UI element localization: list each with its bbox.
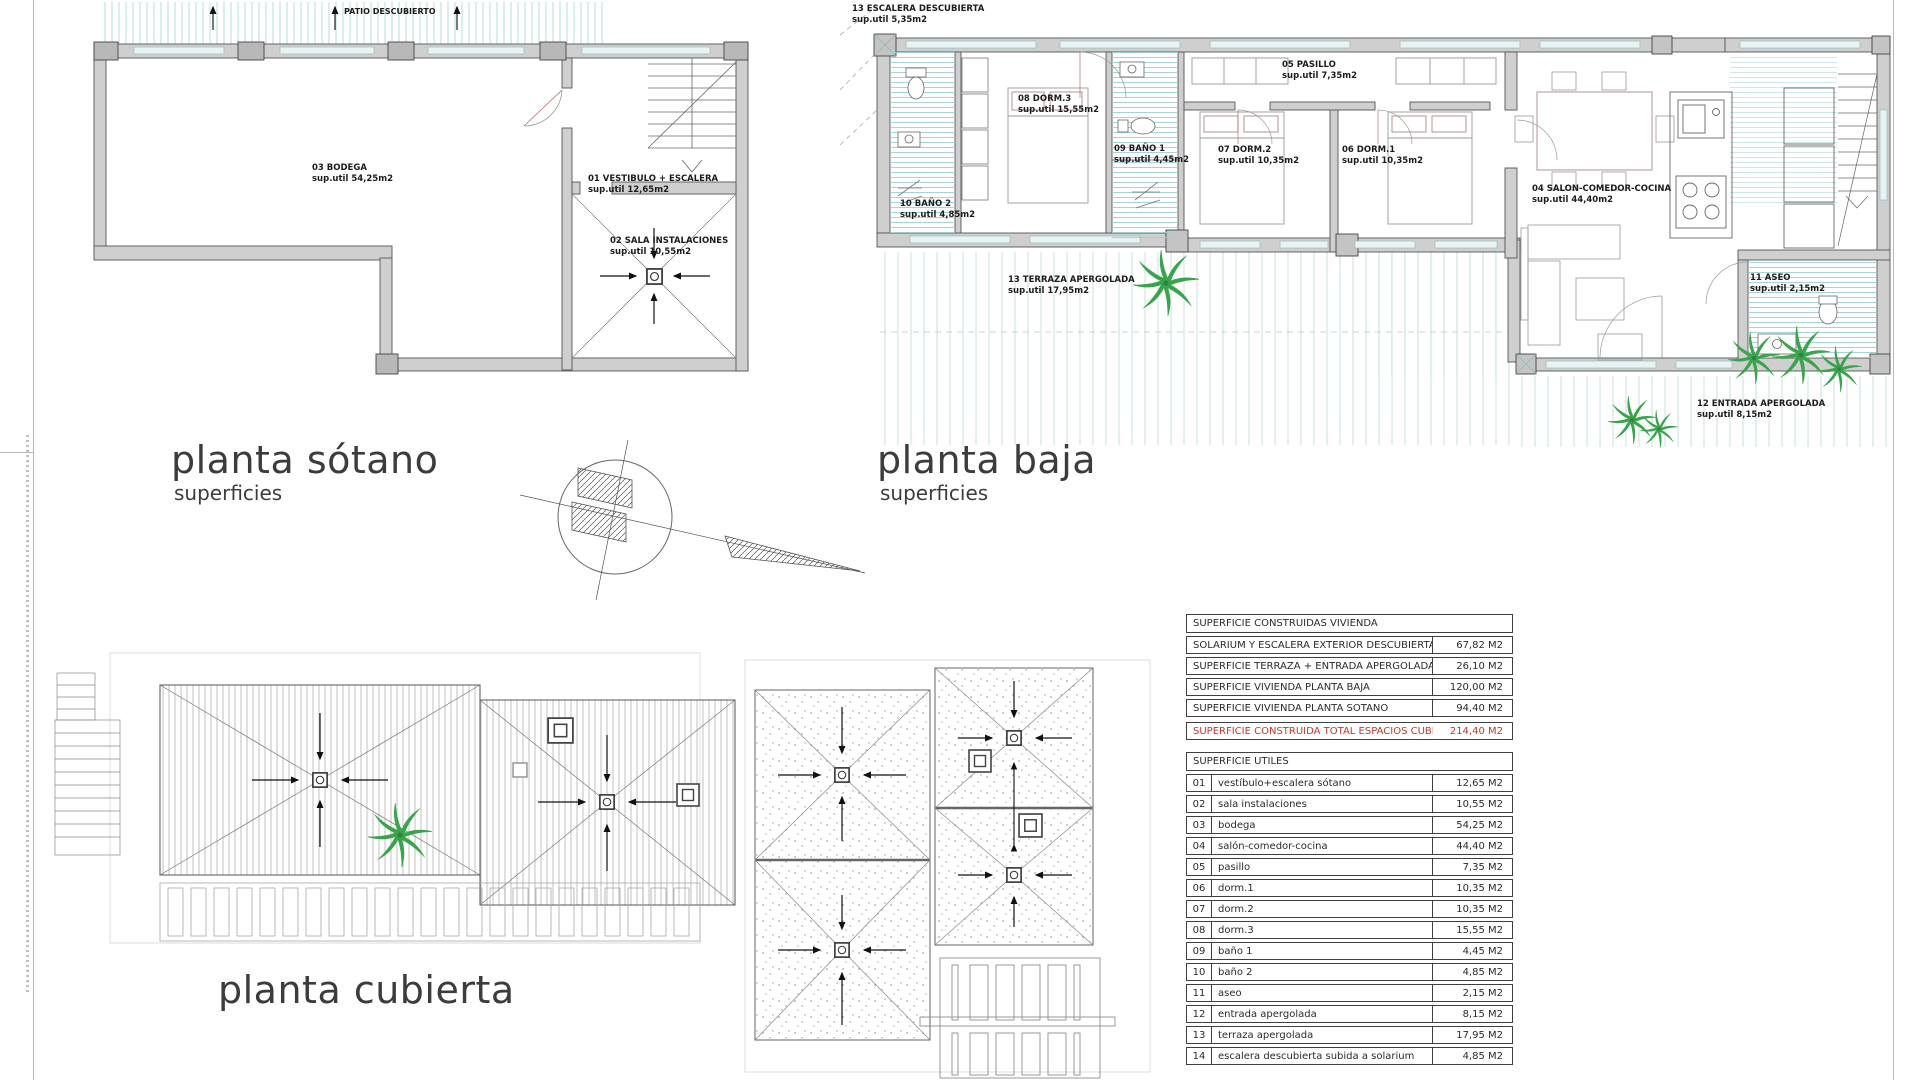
sotano-door <box>524 90 562 126</box>
title-planta-cubierta: planta cubierta <box>218 968 515 1012</box>
row-number: 02 <box>1187 796 1212 812</box>
room-label-pasillo: 05 PASILLOsup.util 7,35m2 <box>1282 60 1357 82</box>
row-number: 04 <box>1187 838 1212 854</box>
row-value: 7,35 M2 <box>1432 859 1512 875</box>
room-label-sala-instalaciones: 02 SALA INSTALACIONESsup.util 10,55m2 <box>610 236 728 258</box>
table-row: 14 escalera descubierta subida a solariu… <box>1186 1047 1513 1065</box>
room-label-dorm2: 07 DORM.2sup.util 10,35m2 <box>1218 145 1299 167</box>
row-label: SOLARIUM Y ESCALERA EXTERIOR DESCUBIERTA <box>1187 637 1432 653</box>
sala-instalaciones-cross <box>572 194 736 358</box>
dorm1-furniture <box>1388 58 1496 224</box>
table-total-row: SUPERFICIE CONSTRUIDA TOTAL ESPACIOS CUB… <box>1186 722 1513 740</box>
row-label: SUPERFICIE TERRAZA + ENTRADA APERGOLADA <box>1187 658 1432 674</box>
row-number: 05 <box>1187 859 1212 875</box>
row-number: 10 <box>1187 964 1212 980</box>
table-superficies-utiles: SUPERFICIE UTILES 01 vestíbulo+escalera … <box>1186 752 1513 1065</box>
subtitle-baja: superficies <box>880 481 988 505</box>
plan-baja-drawing <box>840 0 1920 455</box>
table-row: 13 terraza apergolada 17,95 M2 <box>1186 1026 1513 1044</box>
table-row: 02 sala instalaciones 10,55 M2 <box>1186 795 1513 813</box>
row-label: dorm.2 <box>1212 901 1432 917</box>
total-value: 214,40 M2 <box>1433 723 1512 739</box>
row-label: escalera descubierta subida a solarium <box>1212 1048 1432 1064</box>
row-value: 4,85 M2 <box>1432 1048 1512 1064</box>
room-label-bodega: 03 BODEGAsup.util 54,25m2 <box>312 163 393 185</box>
row-label: sala instalaciones <box>1212 796 1432 812</box>
row-number: 09 <box>1187 943 1212 959</box>
row-value: 4,45 M2 <box>1432 943 1512 959</box>
table-row: 06 dorm.1 10,35 M2 <box>1186 879 1513 897</box>
escalera-descubierta-lines <box>840 6 877 145</box>
row-number: 03 <box>1187 817 1212 833</box>
row-value: 26,10 M2 <box>1432 658 1512 674</box>
title-planta-baja: planta baja <box>877 438 1096 482</box>
room-label-dorm3: 08 DORM.3sup.util 15,55m2 <box>1018 94 1099 116</box>
row-value: 10,35 M2 <box>1432 901 1512 917</box>
table-utiles-rows: 01 vestíbulo+escalera sótano 12,65 M2 02… <box>1186 774 1513 1065</box>
table-row: SOLARIUM Y ESCALERA EXTERIOR DESCUBIERTA… <box>1186 636 1513 654</box>
room-label-dorm1: 06 DORM.1sup.util 10,35m2 <box>1342 145 1423 167</box>
row-value: 2,15 M2 <box>1432 985 1512 1001</box>
row-label: salón-comedor-cocina <box>1212 838 1432 854</box>
sheet-frame-left <box>33 0 34 1080</box>
table-row: 08 dorm.3 15,55 M2 <box>1186 921 1513 939</box>
row-value: 54,25 M2 <box>1432 817 1512 833</box>
roof-c <box>755 690 930 1040</box>
row-label: bodega <box>1212 817 1432 833</box>
table-row: 03 bodega 54,25 M2 <box>1186 816 1513 834</box>
row-label: vestíbulo+escalera sótano <box>1212 775 1432 791</box>
total-label: SUPERFICIE CONSTRUIDA TOTAL ESPACIOS CUB… <box>1187 723 1433 739</box>
sotano-stairs <box>648 58 736 172</box>
row-number: 06 <box>1187 880 1212 896</box>
table-row: 09 baño 1 4,45 M2 <box>1186 942 1513 960</box>
room-label-bano2: 10 BAÑO 2sup.util 4,85m2 <box>900 199 975 221</box>
plan-sotano-drawing <box>88 0 758 400</box>
row-number: 13 <box>1187 1027 1212 1043</box>
room-label-salon: 04 SALON-COMEDOR-COCINAsup.util 44,40m2 <box>1532 184 1671 206</box>
room-label-bano1: 09 BAÑO 1sup.util 4,45m2 <box>1114 144 1189 166</box>
table-row: SUPERFICIE TERRAZA + ENTRADA APERGOLADA … <box>1186 657 1513 675</box>
table-row: SUPERFICIE VIVIENDA PLANTA SOTANO 94,40 … <box>1186 699 1513 717</box>
row-label: aseo <box>1212 985 1432 1001</box>
row-number: 08 <box>1187 922 1212 938</box>
row-label: baño 1 <box>1212 943 1432 959</box>
roof-a <box>160 685 480 875</box>
row-value: 67,82 M2 <box>1432 637 1512 653</box>
row-label: SUPERFICIE VIVIENDA PLANTA SOTANO <box>1187 700 1432 716</box>
row-value: 4,85 M2 <box>1432 964 1512 980</box>
row-number: 07 <box>1187 901 1212 917</box>
sheet-stamp-microtext <box>26 432 29 992</box>
row-label: terraza apergolada <box>1212 1027 1432 1043</box>
table-superficies-construidas: SUPERFICIE CONSTRUIDAS VIVIENDA SOLARIUM… <box>1186 614 1513 740</box>
room-label-aseo: 11 ASEOsup.util 2,15m2 <box>1750 273 1825 295</box>
room-label-terraza: 13 TERRAZA APERGOLADAsup.util 17,95m2 <box>1008 275 1135 297</box>
row-number: 14 <box>1187 1048 1212 1064</box>
table-row: 07 dorm.2 10,35 M2 <box>1186 900 1513 918</box>
patio-label: PATIO DESCUBIERTO <box>344 7 436 16</box>
cubierta-pergola-right <box>920 958 1115 1078</box>
row-value: 10,35 M2 <box>1432 880 1512 896</box>
table-row: 11 aseo 2,15 M2 <box>1186 984 1513 1002</box>
architectural-plan-sheet: { "colors": { "accent_red": "#c4362a", "… <box>0 0 1920 1080</box>
table-row: 12 entrada apergolada 8,15 M2 <box>1186 1005 1513 1023</box>
row-value: 120,00 M2 <box>1432 679 1512 695</box>
row-label: pasillo <box>1212 859 1432 875</box>
row-value: 15,55 M2 <box>1432 922 1512 938</box>
row-label: dorm.1 <box>1212 880 1432 896</box>
row-value: 94,40 M2 <box>1432 700 1512 716</box>
table-row: 04 salón-comedor-cocina 44,40 M2 <box>1186 837 1513 855</box>
row-number: 01 <box>1187 775 1212 791</box>
table-construidas-header: SUPERFICIE CONSTRUIDAS VIVIENDA <box>1186 614 1513 633</box>
room-label-escalera-descubierta: 13 ESCALERA DESCUBIERTAsup.util 5,35m2 <box>852 4 984 26</box>
row-number: 12 <box>1187 1006 1212 1022</box>
north-arrow-symbol <box>520 440 880 600</box>
title-planta-sotano: planta sótano <box>171 438 438 482</box>
row-value: 8,15 M2 <box>1432 1006 1512 1022</box>
row-value: 12,65 M2 <box>1432 775 1512 791</box>
subtitle-sotano: superficies <box>174 481 282 505</box>
dorm2-furniture <box>1192 58 1288 224</box>
sotano-pillars <box>94 42 748 374</box>
table-row: 01 vestíbulo+escalera sótano 12,65 M2 <box>1186 774 1513 792</box>
room-label-entrada: 12 ENTRADA APERGOLADAsup.util 8,15m2 <box>1697 399 1825 421</box>
row-number: 11 <box>1187 985 1212 1001</box>
row-value: 10,55 M2 <box>1432 796 1512 812</box>
roof-b <box>480 700 735 905</box>
table-row: SUPERFICIE VIVIENDA PLANTA BAJA 120,00 M… <box>1186 678 1513 696</box>
table-row: 05 pasillo 7,35 M2 <box>1186 858 1513 876</box>
roof-d <box>935 668 1093 945</box>
row-label: baño 2 <box>1212 964 1432 980</box>
row-label: entrada apergolada <box>1212 1006 1432 1022</box>
sotano-walls <box>94 44 748 371</box>
table-construidas-rows: SOLARIUM Y ESCALERA EXTERIOR DESCUBIERTA… <box>1186 636 1513 717</box>
row-label: SUPERFICIE VIVIENDA PLANTA BAJA <box>1187 679 1432 695</box>
table-row: 10 baño 2 4,85 M2 <box>1186 963 1513 981</box>
table-utiles-header: SUPERFICIE UTILES <box>1186 752 1513 771</box>
plan-cubierta-drawing <box>40 645 1170 1080</box>
row-value: 17,95 M2 <box>1432 1027 1512 1043</box>
room-label-vestibulo: 01 VESTIBULO + ESCALERAsup.util 12,65m2 <box>588 174 718 196</box>
row-value: 44,40 M2 <box>1432 838 1512 854</box>
row-label: dorm.3 <box>1212 922 1432 938</box>
